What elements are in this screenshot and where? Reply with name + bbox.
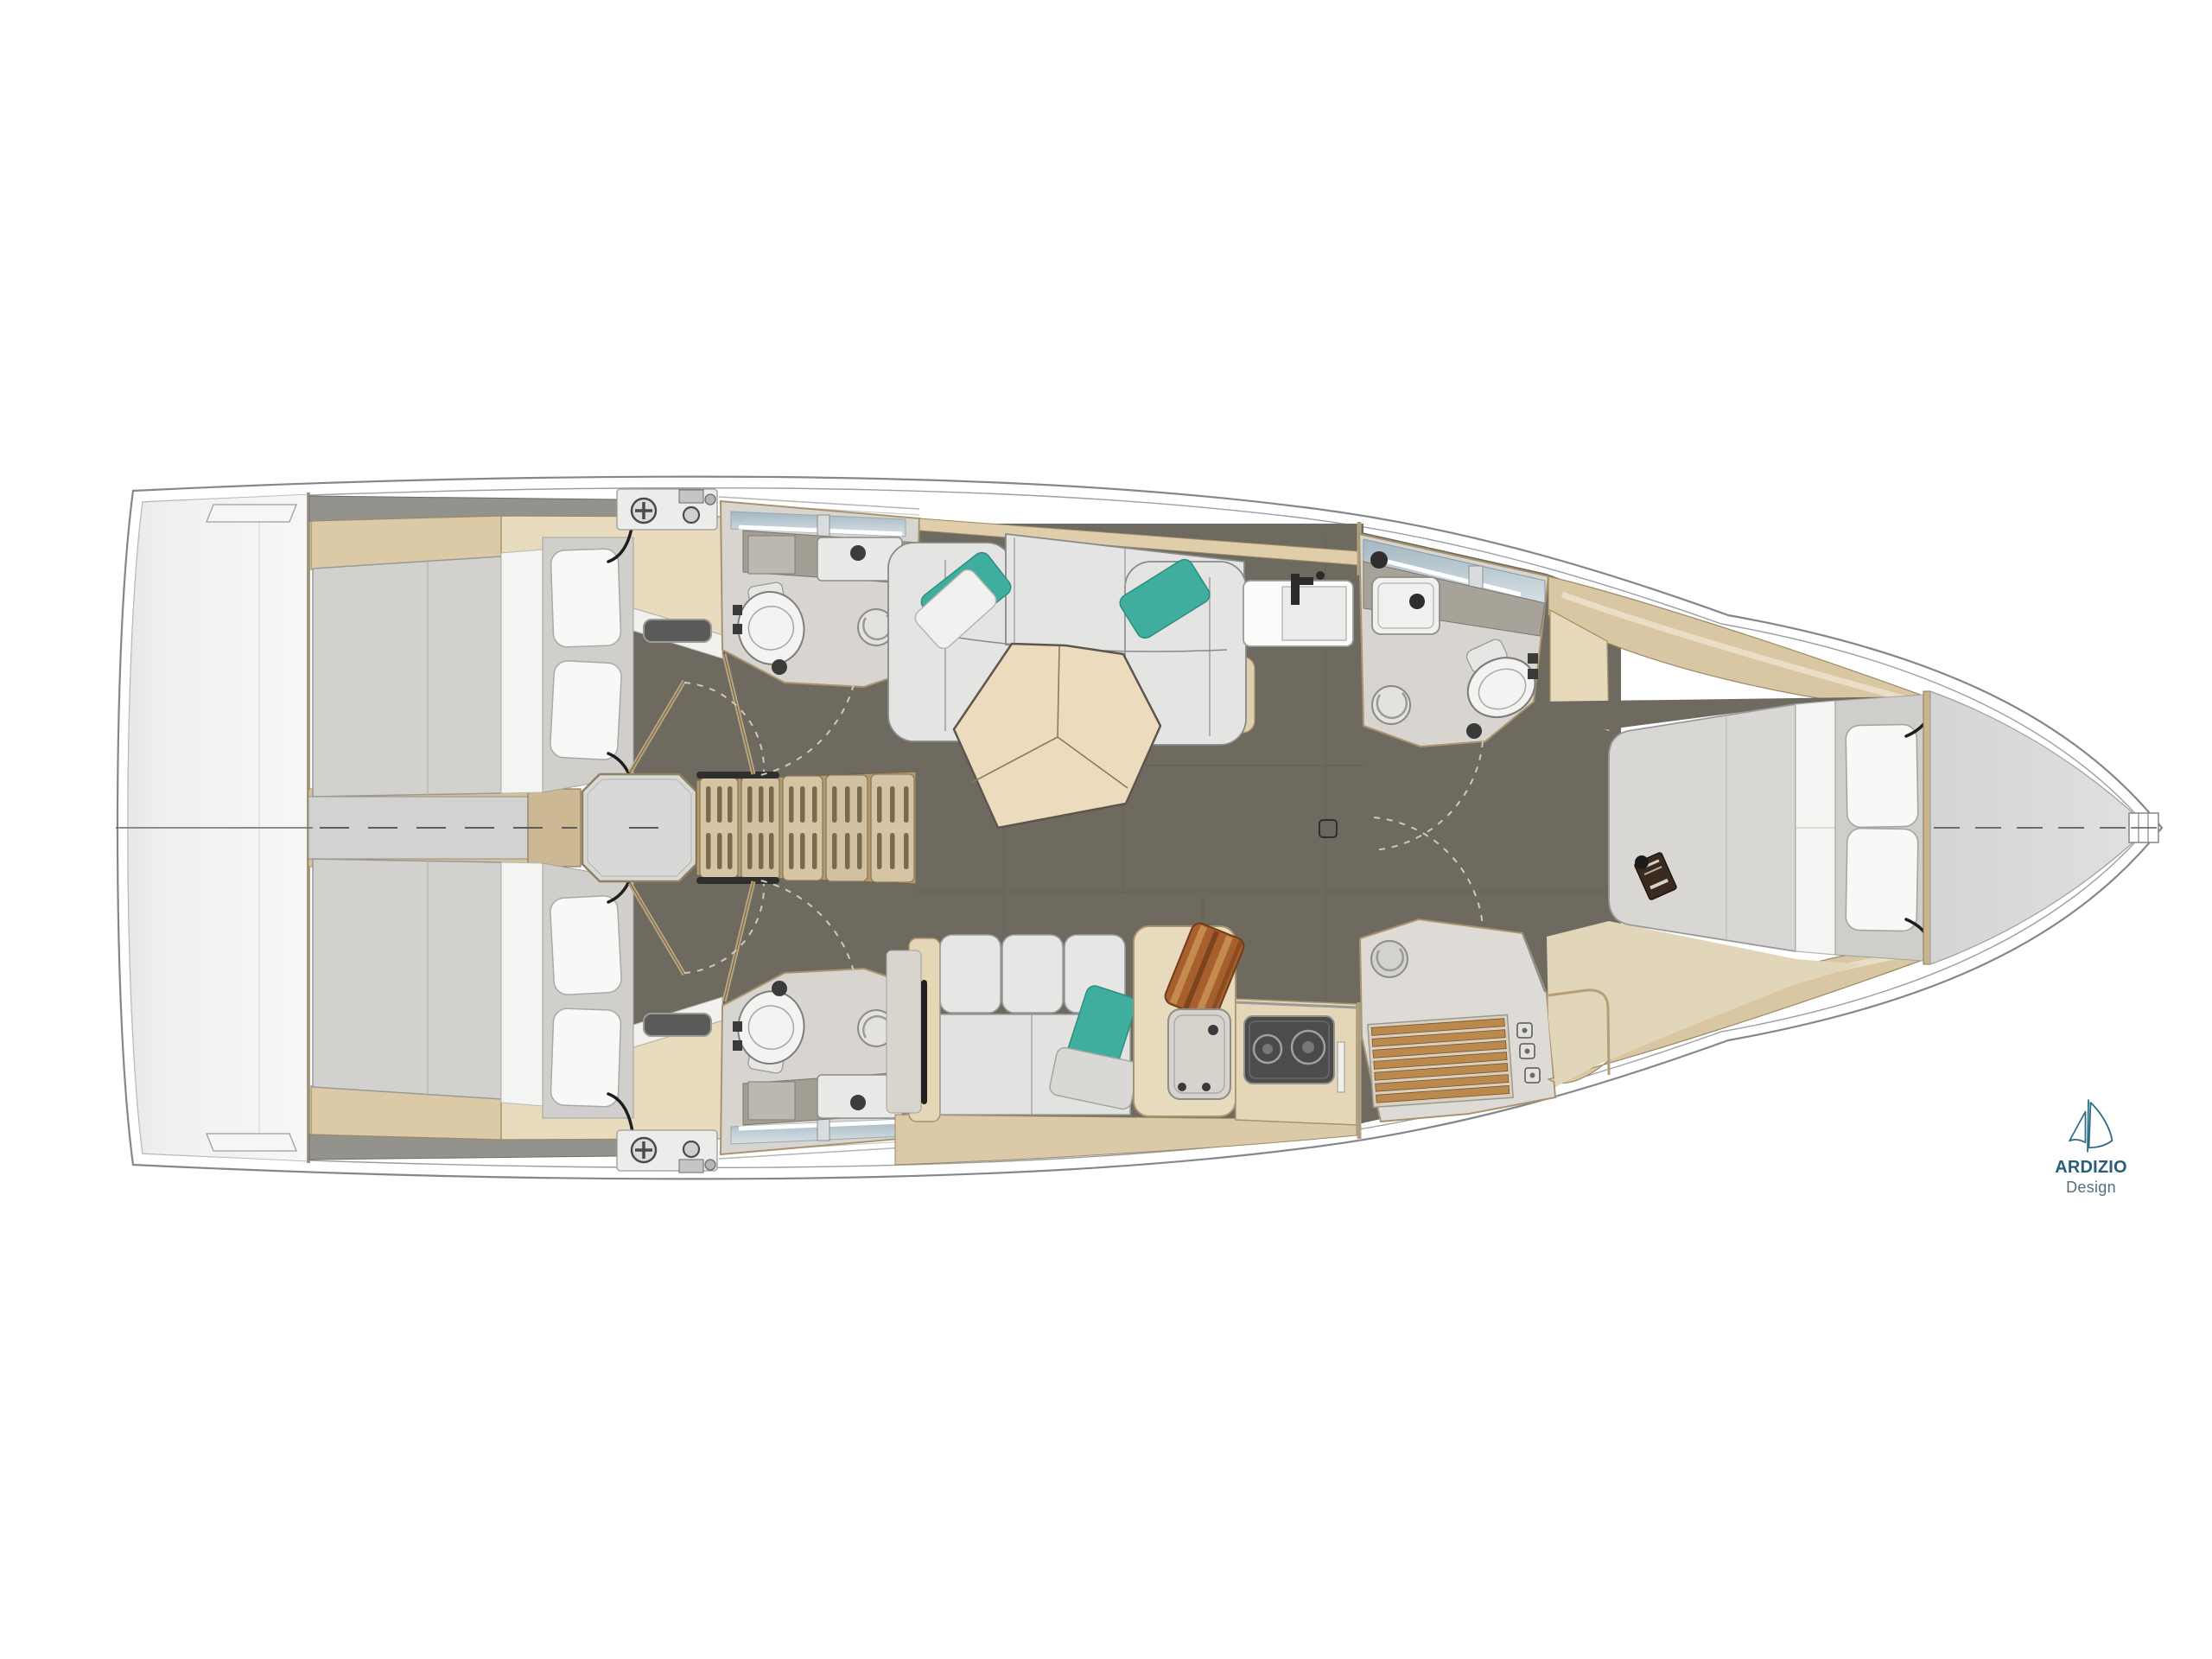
- svg-text:Design: Design: [2066, 1179, 2116, 1196]
- svg-text:ARDIZIO: ARDIZIO: [2055, 1158, 2127, 1177]
